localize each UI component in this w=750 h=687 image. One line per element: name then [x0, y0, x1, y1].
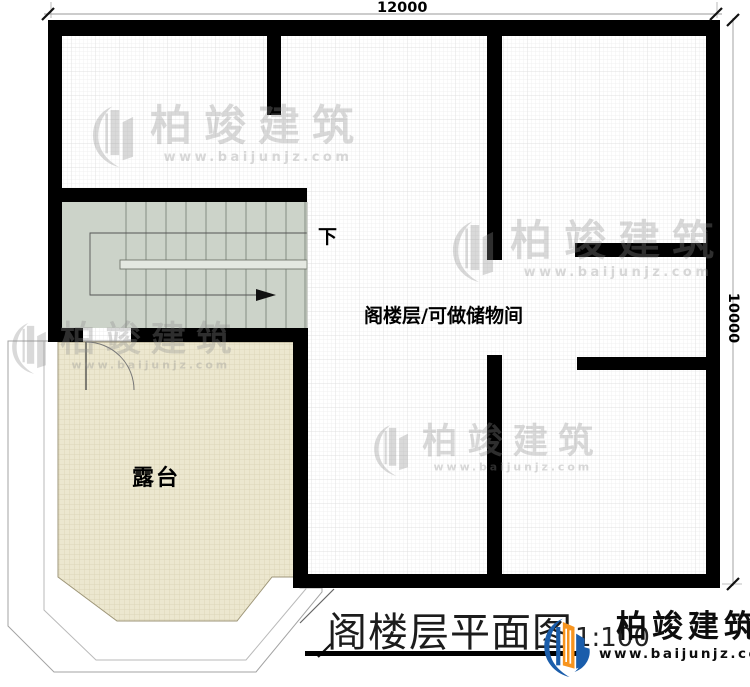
brand-name-text: 柏竣建筑	[616, 611, 750, 644]
floor-plan-drawing	[0, 0, 750, 687]
brand-logo: 柏竣建筑 www.baijunjz.com	[541, 611, 750, 677]
wall-right-room-a	[575, 243, 706, 257]
wall-right-room-b	[577, 357, 706, 370]
wall-stub-top-left	[267, 36, 281, 115]
wall-divider-lower	[487, 355, 502, 574]
wall-left	[48, 20, 62, 342]
wall-divider-upper	[487, 36, 502, 260]
attic-room-label: 阁楼层/可做储物间	[364, 301, 523, 328]
floor-plan-page: 柏竣建筑 www.baijunjz.com 柏竣建筑 www.baijunjz.…	[0, 0, 750, 687]
wall-right	[706, 20, 720, 588]
brand-logo-icon	[541, 617, 593, 677]
wall-above-stairs	[48, 188, 307, 202]
brand-url-text: www.baijunjz.com	[599, 646, 750, 662]
stair-handrail	[120, 260, 307, 269]
plan-title: 阁楼层平面图	[327, 600, 573, 658]
terrace-label: 露台	[132, 460, 180, 492]
terrace-area	[8, 341, 322, 672]
wall-terrace-top-b	[131, 328, 307, 342]
stairs-down-label: 下	[318, 222, 337, 249]
wall-top	[48, 20, 720, 36]
wall-bottom	[293, 574, 720, 588]
wall-terrace-top-a	[48, 328, 83, 342]
staircase	[62, 202, 307, 328]
dimension-top-label: 12000	[377, 0, 427, 16]
dimension-right-label: 10000	[725, 293, 741, 343]
wall-attic-left	[293, 328, 308, 574]
